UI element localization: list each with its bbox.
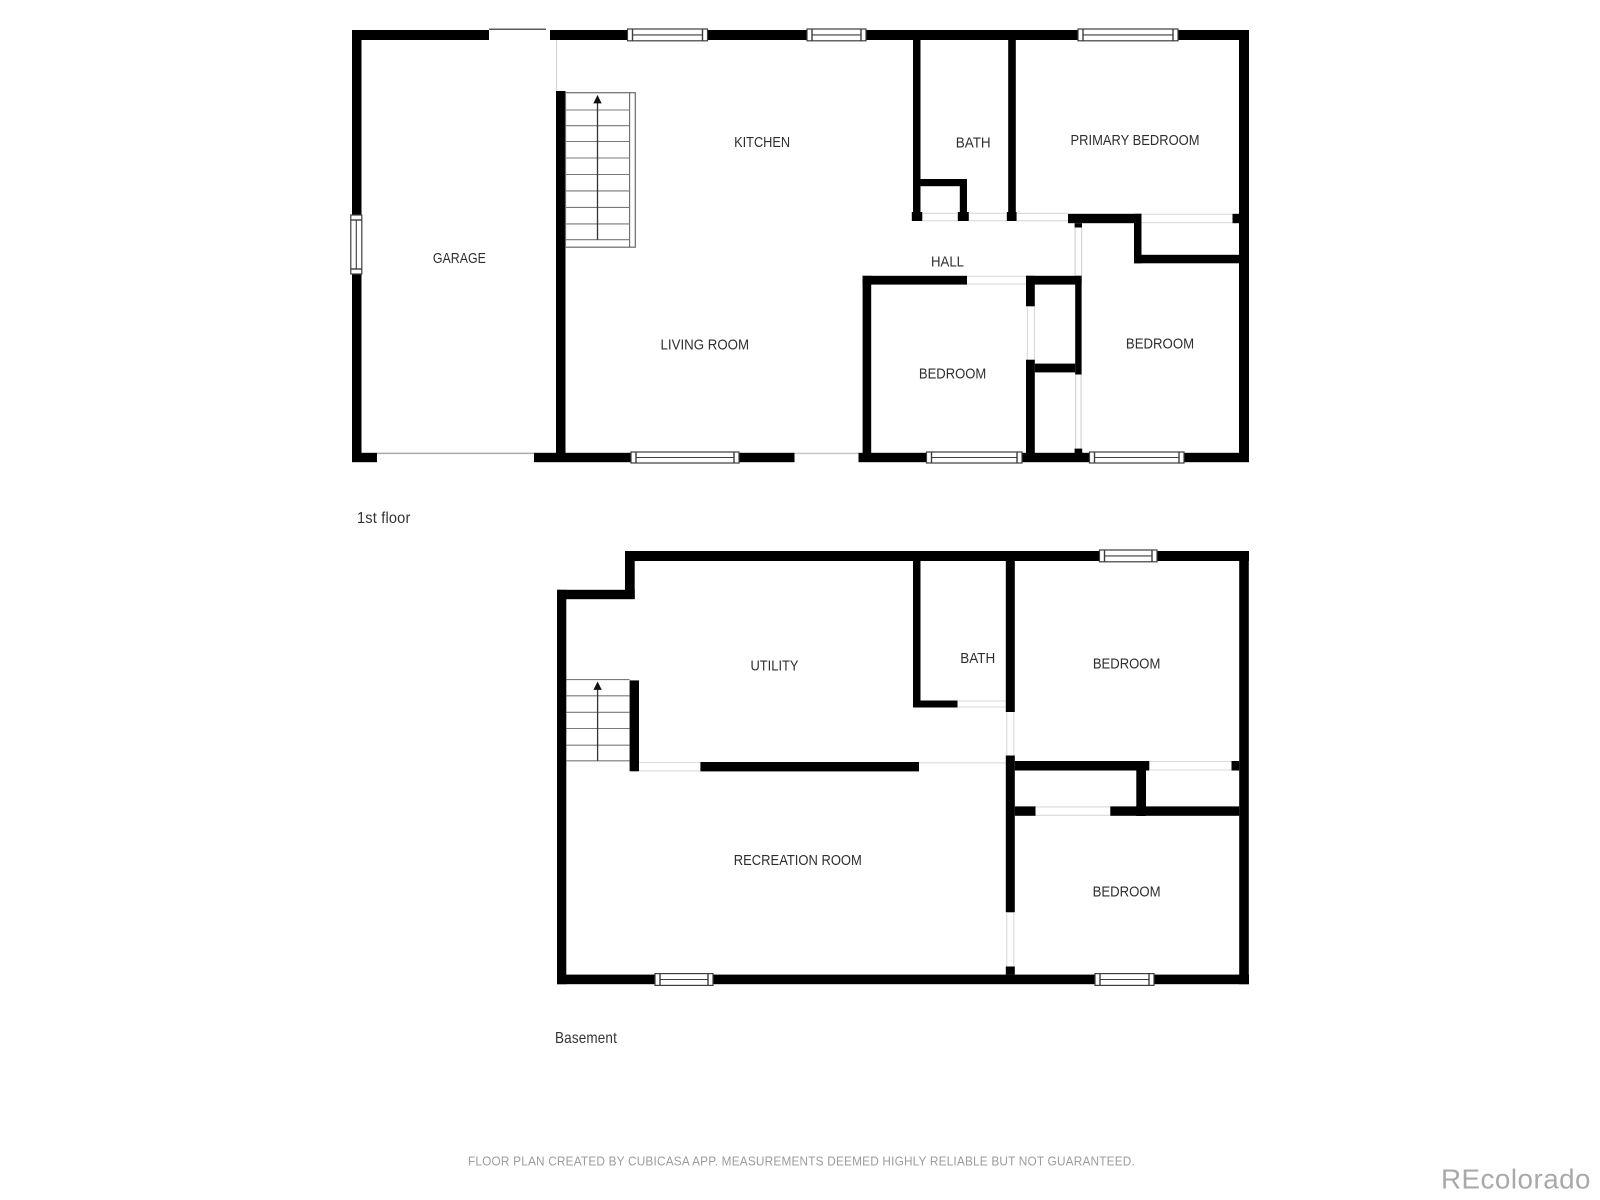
svg-text:1st floor: 1st floor [357,510,411,527]
svg-text:BEDROOM: BEDROOM [1126,335,1194,352]
svg-text:RECREATION ROOM: RECREATION ROOM [734,852,862,869]
svg-text:FLOOR PLAN CREATED BY CUBICASA: FLOOR PLAN CREATED BY CUBICASA APP. MEAS… [468,1154,1135,1169]
svg-text:GARAGE: GARAGE [433,250,486,267]
svg-text:Basement: Basement [555,1030,617,1047]
svg-text:BEDROOM: BEDROOM [1093,656,1161,673]
svg-text:HALL: HALL [931,254,964,271]
svg-text:LIVING ROOM: LIVING ROOM [661,337,750,354]
svg-text:BEDROOM: BEDROOM [1093,884,1161,901]
svg-text:PRIMARY BEDROOM: PRIMARY BEDROOM [1071,132,1200,149]
svg-text:UTILITY: UTILITY [751,658,799,675]
svg-text:KITCHEN: KITCHEN [734,134,790,151]
svg-text:BEDROOM: BEDROOM [919,365,986,382]
svg-text:REcolorado: REcolorado [1441,1164,1591,1195]
svg-text:BATH: BATH [960,650,995,667]
svg-text:BATH: BATH [956,134,991,151]
